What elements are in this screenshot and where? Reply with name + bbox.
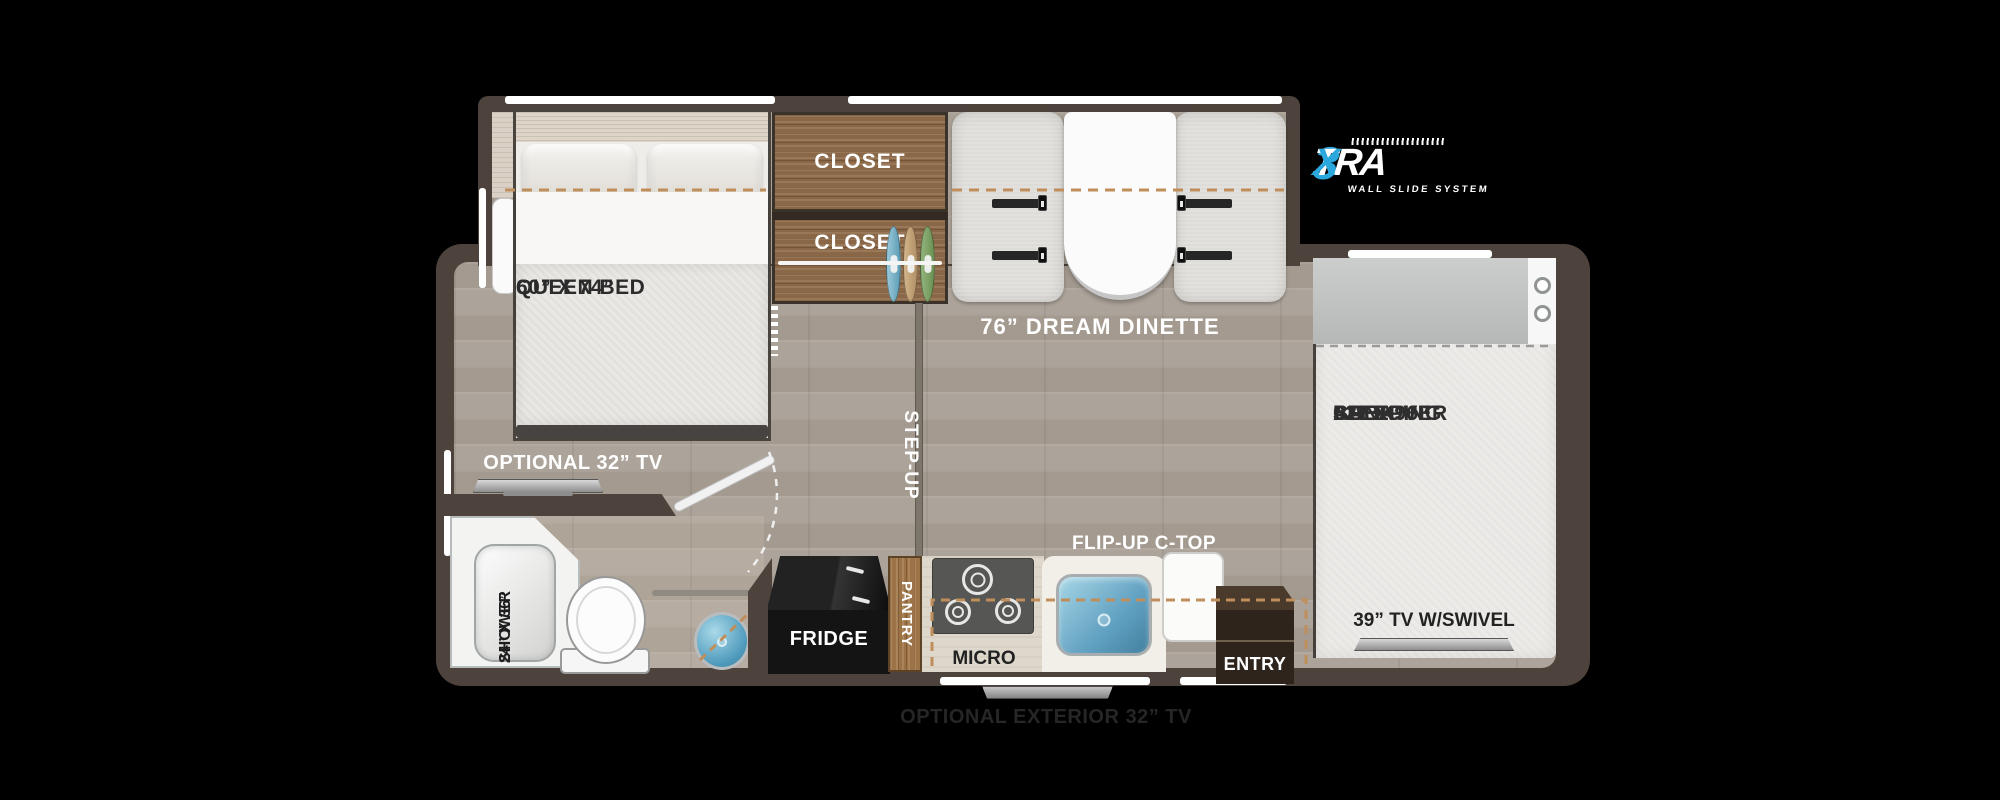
fridge-label: FRIDGE: [768, 628, 890, 651]
entry-label: ENTRY: [1216, 654, 1294, 675]
seat-belt: [1180, 199, 1232, 208]
flip-up-label: FLIP-UP C-TOP: [1024, 533, 1264, 555]
rv-floorplan: QUEEN BED 60” X 74” CLOSET CLOSET 76” DR…: [0, 0, 2000, 800]
microwave-label: MICRO: [924, 648, 1044, 670]
seat-belt: [992, 199, 1044, 208]
dashed-lines-overlay: [0, 0, 2000, 800]
seat-belt: [1180, 251, 1232, 260]
seat-belt: [992, 251, 1044, 260]
closet-rod: [778, 261, 942, 265]
